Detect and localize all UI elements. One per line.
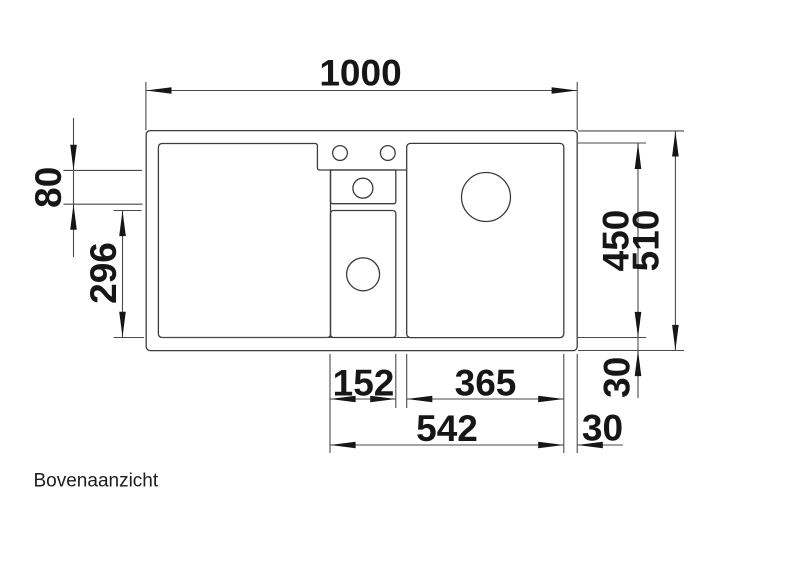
svg-text:80: 80 xyxy=(28,167,69,208)
svg-text:1000: 1000 xyxy=(319,53,401,94)
svg-text:542: 542 xyxy=(416,408,478,449)
svg-text:365: 365 xyxy=(455,362,517,403)
svg-text:Bovenaanzicht: Bovenaanzicht xyxy=(34,470,159,491)
svg-text:30: 30 xyxy=(597,357,638,398)
svg-text:152: 152 xyxy=(333,362,395,403)
svg-text:30: 30 xyxy=(582,408,623,449)
svg-text:296: 296 xyxy=(83,242,124,304)
svg-text:510: 510 xyxy=(626,210,667,272)
